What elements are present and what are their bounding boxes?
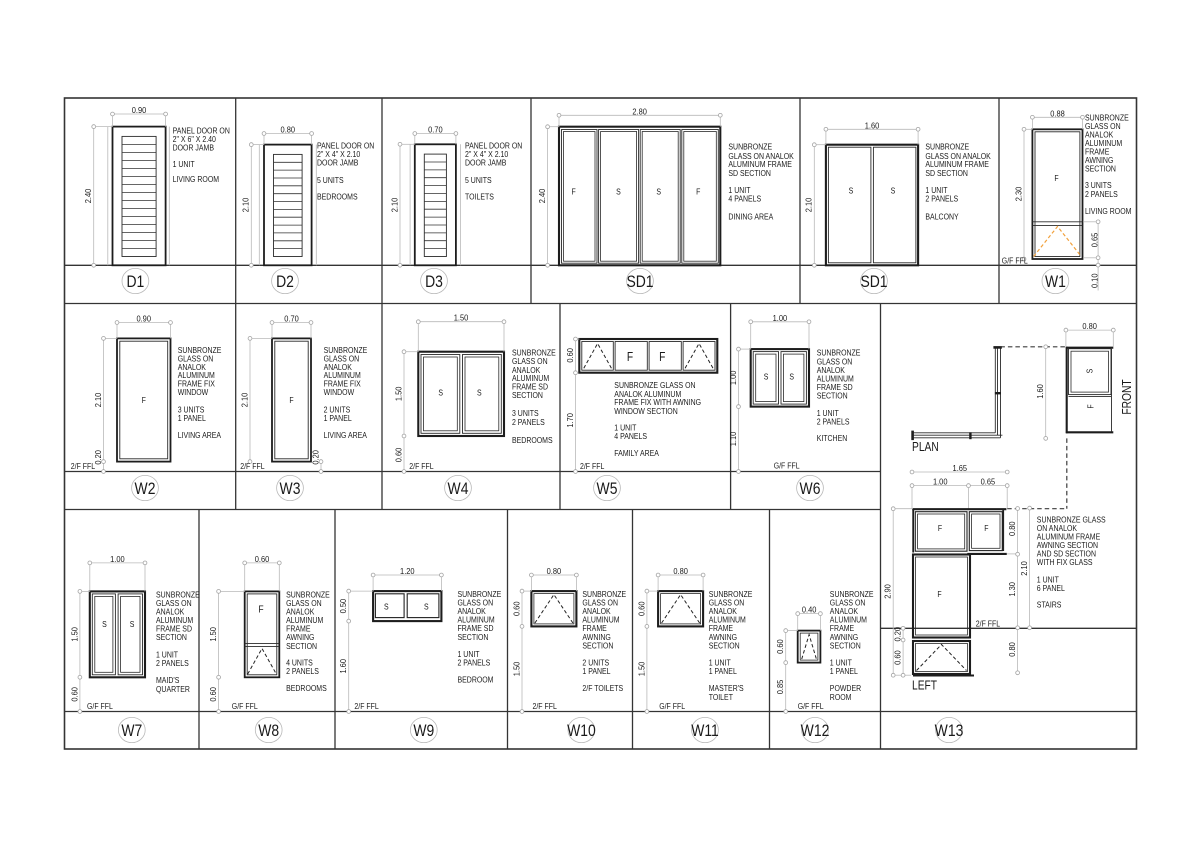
svg-text:0.80: 0.80 xyxy=(1008,521,1017,536)
svg-text:0.80: 0.80 xyxy=(1008,642,1017,657)
svg-text:ROOM: ROOM xyxy=(830,692,852,702)
svg-text:0.60: 0.60 xyxy=(893,650,902,665)
svg-text:S: S xyxy=(477,388,482,398)
svg-text:1.00: 1.00 xyxy=(729,370,738,385)
svg-text:2/F FFL: 2/F FFL xyxy=(580,461,605,471)
svg-text:0.80: 0.80 xyxy=(673,567,688,576)
svg-text:F: F xyxy=(571,187,575,197)
svg-text:S: S xyxy=(130,619,135,629)
svg-text:0.65: 0.65 xyxy=(1090,232,1099,247)
svg-text:SECTION: SECTION xyxy=(582,641,613,651)
svg-text:0.10: 0.10 xyxy=(1090,273,1099,288)
svg-text:W9: W9 xyxy=(413,722,434,740)
svg-text:0.60: 0.60 xyxy=(209,687,218,702)
svg-text:F: F xyxy=(984,523,988,533)
svg-text:S: S xyxy=(789,372,794,382)
svg-text:WINDOW: WINDOW xyxy=(178,387,209,397)
svg-text:SECTION: SECTION xyxy=(830,641,861,651)
svg-text:2/F FFL: 2/F FFL xyxy=(240,461,265,471)
svg-text:D1: D1 xyxy=(126,273,144,291)
svg-text:2.80: 2.80 xyxy=(632,107,647,116)
svg-text:2.10: 2.10 xyxy=(1020,561,1029,576)
svg-text:W1: W1 xyxy=(1045,273,1066,291)
svg-text:2 PANELS: 2 PANELS xyxy=(925,194,958,204)
svg-text:4 PANELS: 4 PANELS xyxy=(728,194,761,204)
svg-text:0.60: 0.60 xyxy=(255,555,270,564)
svg-text:LIVING ROOM: LIVING ROOM xyxy=(173,174,219,184)
svg-text:2.10: 2.10 xyxy=(804,197,813,212)
svg-text:2 PANELS: 2 PANELS xyxy=(512,417,545,427)
svg-text:BEDROOMS: BEDROOMS xyxy=(512,435,553,445)
svg-text:1.30: 1.30 xyxy=(1008,582,1017,597)
svg-text:0.70: 0.70 xyxy=(428,125,443,134)
svg-text:S: S xyxy=(384,602,389,612)
svg-text:DOOR JAMB: DOOR JAMB xyxy=(173,143,214,153)
svg-text:F: F xyxy=(142,395,146,405)
svg-text:2.10: 2.10 xyxy=(241,197,250,212)
svg-text:2/F FFL: 2/F FFL xyxy=(354,701,379,711)
svg-text:G/F FFL: G/F FFL xyxy=(1002,256,1029,266)
svg-text:D3: D3 xyxy=(425,273,443,291)
svg-text:S: S xyxy=(891,186,896,196)
svg-text:W8: W8 xyxy=(258,722,279,740)
svg-text:0.80: 0.80 xyxy=(1082,322,1097,331)
svg-text:1.50: 1.50 xyxy=(454,313,469,322)
svg-text:WINDOW: WINDOW xyxy=(324,387,355,397)
svg-text:1.00: 1.00 xyxy=(933,477,948,486)
svg-text:0.60: 0.60 xyxy=(394,447,403,462)
svg-text:F: F xyxy=(696,187,700,197)
svg-text:S: S xyxy=(656,187,661,197)
svg-text:SECTION: SECTION xyxy=(286,641,317,651)
svg-text:W3: W3 xyxy=(280,480,301,498)
svg-text:PLAN: PLAN xyxy=(912,441,939,454)
svg-text:G/F FFL: G/F FFL xyxy=(659,701,686,711)
svg-text:1 UNIT: 1 UNIT xyxy=(173,159,195,169)
svg-text:LIVING AREA: LIVING AREA xyxy=(324,430,368,440)
svg-text:2 PANELS: 2 PANELS xyxy=(156,658,189,668)
svg-text:D2: D2 xyxy=(276,273,294,291)
svg-text:SECTION: SECTION xyxy=(458,632,489,642)
svg-text:G/F FFL: G/F FFL xyxy=(232,701,259,711)
svg-text:1 PANEL: 1 PANEL xyxy=(709,666,738,676)
svg-text:1.60: 1.60 xyxy=(339,658,348,673)
svg-text:SD1: SD1 xyxy=(626,273,653,291)
svg-text:LIVING AREA: LIVING AREA xyxy=(178,430,222,440)
svg-text:FAMILY AREA: FAMILY AREA xyxy=(614,448,659,458)
svg-text:1 PANEL: 1 PANEL xyxy=(178,413,207,423)
svg-text:0.50: 0.50 xyxy=(339,598,348,613)
svg-text:2/F FFL: 2/F FFL xyxy=(976,619,1001,629)
svg-text:5 UNITS: 5 UNITS xyxy=(317,175,344,185)
svg-text:W7: W7 xyxy=(121,722,142,740)
svg-text:TOILETS: TOILETS xyxy=(465,192,494,202)
svg-text:SECTION: SECTION xyxy=(709,641,740,651)
svg-text:W10: W10 xyxy=(567,722,596,740)
svg-text:0.65: 0.65 xyxy=(981,477,996,486)
svg-text:0.70: 0.70 xyxy=(284,314,299,323)
svg-text:0.90: 0.90 xyxy=(132,106,147,115)
svg-text:DOOR JAMB: DOOR JAMB xyxy=(317,158,358,168)
svg-text:S: S xyxy=(849,186,854,196)
svg-text:F: F xyxy=(937,589,941,599)
svg-text:5 UNITS: 5 UNITS xyxy=(465,175,492,185)
svg-text:W12: W12 xyxy=(801,722,830,740)
svg-text:2.10: 2.10 xyxy=(240,392,249,407)
svg-text:2.40: 2.40 xyxy=(84,188,93,203)
svg-text:F: F xyxy=(1086,404,1096,408)
svg-text:DOOR JAMB: DOOR JAMB xyxy=(465,158,506,168)
svg-text:WINDOW SECTION: WINDOW SECTION xyxy=(614,406,677,416)
svg-text:S: S xyxy=(1085,369,1095,374)
svg-text:LEFT: LEFT xyxy=(912,680,937,693)
svg-text:0.60: 0.60 xyxy=(776,639,785,654)
svg-text:BEDROOMS: BEDROOMS xyxy=(317,192,358,202)
svg-text:0.60: 0.60 xyxy=(512,601,521,616)
svg-text:S: S xyxy=(438,388,443,398)
svg-text:F: F xyxy=(289,395,293,405)
svg-text:0.60: 0.60 xyxy=(637,601,646,616)
svg-text:0.88: 0.88 xyxy=(1050,109,1065,118)
svg-text:F: F xyxy=(627,351,633,364)
svg-text:BEDROOMS: BEDROOMS xyxy=(286,683,327,693)
svg-text:6 PANEL: 6 PANEL xyxy=(1037,583,1066,593)
svg-text:S: S xyxy=(102,619,107,629)
svg-text:G/F FFL: G/F FFL xyxy=(774,461,801,471)
svg-text:0.80: 0.80 xyxy=(281,125,296,134)
svg-text:0.20: 0.20 xyxy=(311,450,320,465)
svg-text:1.50: 1.50 xyxy=(637,661,646,676)
svg-text:2 PANELS: 2 PANELS xyxy=(817,417,850,427)
svg-text:1 PANEL: 1 PANEL xyxy=(582,666,611,676)
svg-text:2.10: 2.10 xyxy=(94,392,103,407)
svg-text:G/F FFL: G/F FFL xyxy=(87,701,114,711)
svg-text:STAIRS: STAIRS xyxy=(1037,600,1062,610)
svg-text:G/F FFL: G/F FFL xyxy=(798,701,825,711)
svg-text:0.90: 0.90 xyxy=(136,314,151,323)
svg-text:SECTION: SECTION xyxy=(817,391,848,401)
svg-text:2.90: 2.90 xyxy=(883,584,892,599)
svg-text:S: S xyxy=(616,187,621,197)
svg-text:LIVING ROOM: LIVING ROOM xyxy=(1085,206,1131,216)
svg-text:0.60: 0.60 xyxy=(70,687,79,702)
svg-text:W13: W13 xyxy=(935,722,964,740)
svg-text:0.20: 0.20 xyxy=(893,626,902,641)
svg-text:TOILET: TOILET xyxy=(709,692,733,702)
svg-text:2/F FFL: 2/F FFL xyxy=(409,461,434,471)
svg-text:1.70: 1.70 xyxy=(566,413,575,428)
svg-text:1 PANEL: 1 PANEL xyxy=(324,413,353,423)
svg-text:4 PANELS: 4 PANELS xyxy=(614,431,647,441)
svg-text:S: S xyxy=(764,372,769,382)
svg-text:1.10: 1.10 xyxy=(729,431,738,446)
svg-text:1.00: 1.00 xyxy=(110,555,125,564)
svg-text:1.00: 1.00 xyxy=(773,313,788,322)
svg-text:SD SECTION: SD SECTION xyxy=(925,168,968,178)
svg-text:2 PANELS: 2 PANELS xyxy=(1085,189,1118,199)
svg-text:W2: W2 xyxy=(135,480,156,498)
svg-text:KITCHEN: KITCHEN xyxy=(817,433,848,443)
svg-text:2/F TOILETS: 2/F TOILETS xyxy=(582,684,623,694)
svg-text:1.50: 1.50 xyxy=(394,386,403,401)
svg-text:1 PANEL: 1 PANEL xyxy=(830,666,859,676)
svg-text:W5: W5 xyxy=(597,480,618,498)
svg-text:0.40: 0.40 xyxy=(802,605,817,614)
svg-text:WITH FIX GLASS: WITH FIX GLASS xyxy=(1037,557,1093,567)
svg-text:0.85: 0.85 xyxy=(776,679,785,694)
svg-text:FRONT: FRONT xyxy=(1121,379,1134,414)
svg-text:QUARTER: QUARTER xyxy=(156,684,190,694)
svg-text:SECTION: SECTION xyxy=(512,390,543,400)
svg-text:SD1: SD1 xyxy=(860,273,887,291)
svg-text:0.80: 0.80 xyxy=(547,567,562,576)
svg-text:2 PANELS: 2 PANELS xyxy=(458,658,491,668)
svg-text:1.50: 1.50 xyxy=(512,661,521,676)
svg-text:SECTION: SECTION xyxy=(156,633,187,643)
svg-text:2.10: 2.10 xyxy=(390,197,399,212)
svg-text:1.20: 1.20 xyxy=(400,567,415,576)
svg-text:2.30: 2.30 xyxy=(1014,186,1023,201)
svg-text:1.50: 1.50 xyxy=(209,627,218,642)
svg-text:BALCONY: BALCONY xyxy=(925,212,959,222)
svg-text:F: F xyxy=(1054,173,1058,183)
svg-text:W4: W4 xyxy=(448,480,469,498)
svg-text:W11: W11 xyxy=(691,722,719,740)
svg-text:1.50: 1.50 xyxy=(70,627,79,642)
svg-text:F: F xyxy=(938,523,942,533)
svg-text:1.60: 1.60 xyxy=(865,121,880,130)
svg-text:S: S xyxy=(424,602,429,612)
svg-text:BEDROOM: BEDROOM xyxy=(458,675,494,685)
svg-text:SD SECTION: SD SECTION xyxy=(728,168,771,178)
svg-text:W6: W6 xyxy=(800,480,821,498)
svg-text:DINING AREA: DINING AREA xyxy=(728,212,774,222)
svg-text:2/F FFL: 2/F FFL xyxy=(533,701,558,711)
svg-text:0.60: 0.60 xyxy=(566,348,575,363)
svg-text:2 PANELS: 2 PANELS xyxy=(286,666,319,676)
svg-text:1.60: 1.60 xyxy=(1036,384,1045,399)
svg-text:2/F FFL: 2/F FFL xyxy=(71,461,96,471)
svg-text:1.65: 1.65 xyxy=(953,464,968,473)
svg-text:F: F xyxy=(258,604,263,616)
svg-text:F: F xyxy=(659,351,665,364)
svg-text:SECTION: SECTION xyxy=(1085,164,1116,174)
svg-text:2.40: 2.40 xyxy=(538,188,547,203)
